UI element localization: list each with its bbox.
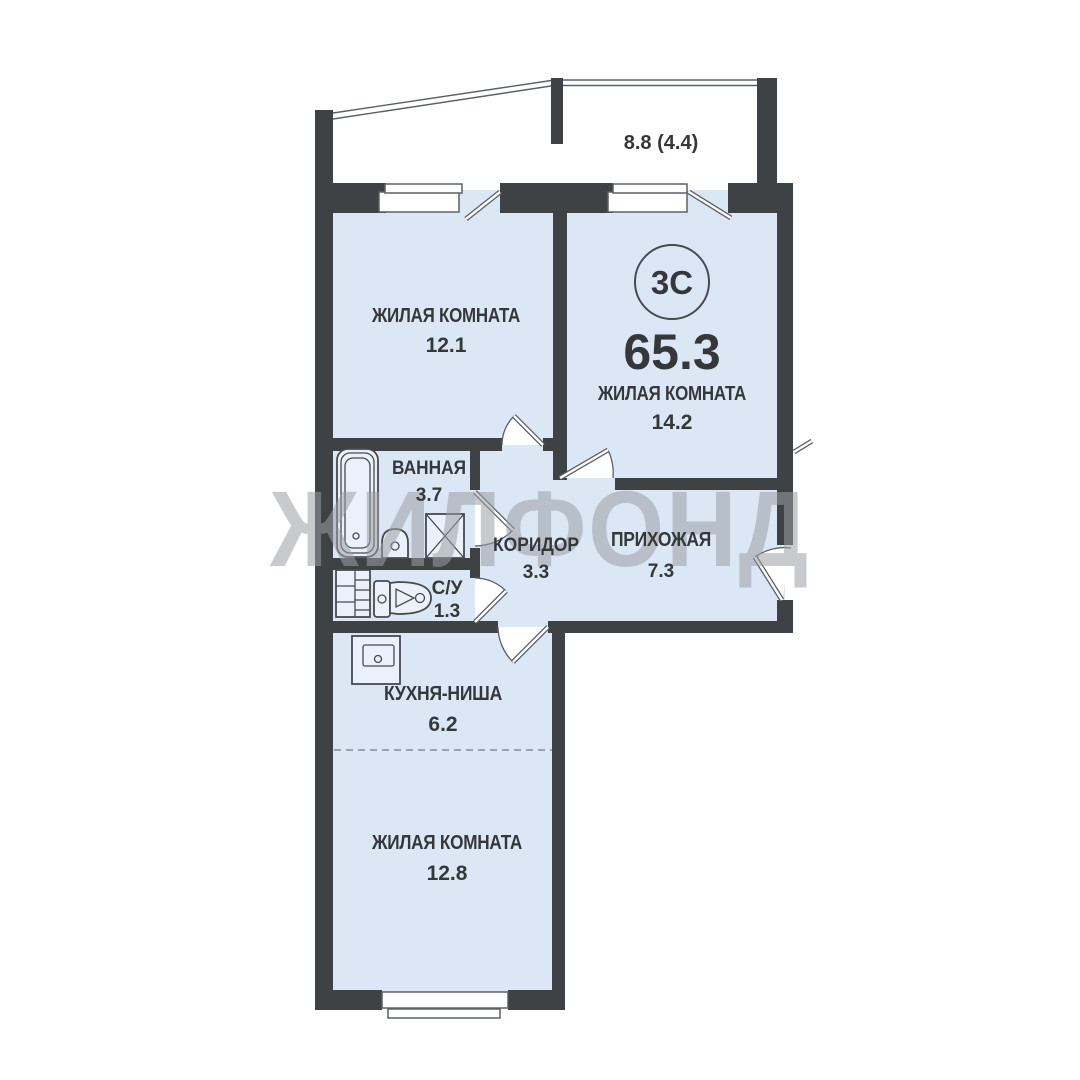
corridor-name: КОРИДОР [493, 535, 579, 556]
kitchen-sink [352, 636, 400, 684]
bottom-wall-left [315, 990, 382, 1010]
window-living2-glass [613, 184, 687, 193]
balcony-left-stub [551, 78, 563, 144]
kitchen-right-wall [552, 621, 565, 1010]
living2-name: ЖИЛАЯ КОМНАТА [597, 383, 746, 405]
living3-name: ЖИЛАЯ КОМНАТА [371, 832, 522, 854]
window-living2-sill [608, 192, 687, 212]
window-living3-sill [388, 1009, 500, 1018]
floorplan-svg: ЖИЛФОНД ЖИЛАЯ КОМНАТА 12.1 3С 65.3 ЖИЛАЯ… [0, 0, 1080, 1080]
balcony-right-wall [757, 78, 777, 183]
wc-area: 1.3 [434, 601, 460, 622]
hallway-bottom-wall [548, 621, 792, 633]
hallway-name: ПРИХОЖАЯ [611, 529, 711, 551]
kitchen-area: 6.2 [428, 713, 457, 736]
living1-bottom-wall-stub [543, 438, 553, 451]
bathroom-name: ВАННАЯ [392, 458, 466, 479]
window-living1-sill [379, 192, 459, 212]
corridor-area: 3.3 [523, 562, 549, 583]
hallway-area: 7.3 [648, 561, 674, 582]
total-area: 65.3 [623, 324, 720, 380]
window-living1-glass [385, 184, 462, 193]
wc-name: С/У [432, 578, 463, 599]
floorplan-canvas: ЖИЛФОНД ЖИЛАЯ КОМНАТА 12.1 3С 65.3 ЖИЛАЯ… [0, 0, 1080, 1080]
living3-area: 12.8 [427, 862, 468, 885]
bottom-wall-right [508, 990, 565, 1010]
unit-badge-label: 3С [651, 264, 693, 301]
living2-area: 14.2 [652, 411, 693, 434]
living1-area: 12.1 [426, 334, 467, 357]
balcony-area-label: 8.8 (4.4) [624, 132, 698, 154]
window-living3-glass [382, 992, 508, 1008]
kitchen-name: КУХНЯ-НИША [384, 683, 502, 705]
living1-name: ЖИЛАЯ КОМНАТА [371, 305, 520, 327]
bathroom-area: 3.7 [416, 485, 442, 506]
corridor-bottom-wall-left [315, 621, 498, 633]
interroom-wall [553, 183, 567, 480]
